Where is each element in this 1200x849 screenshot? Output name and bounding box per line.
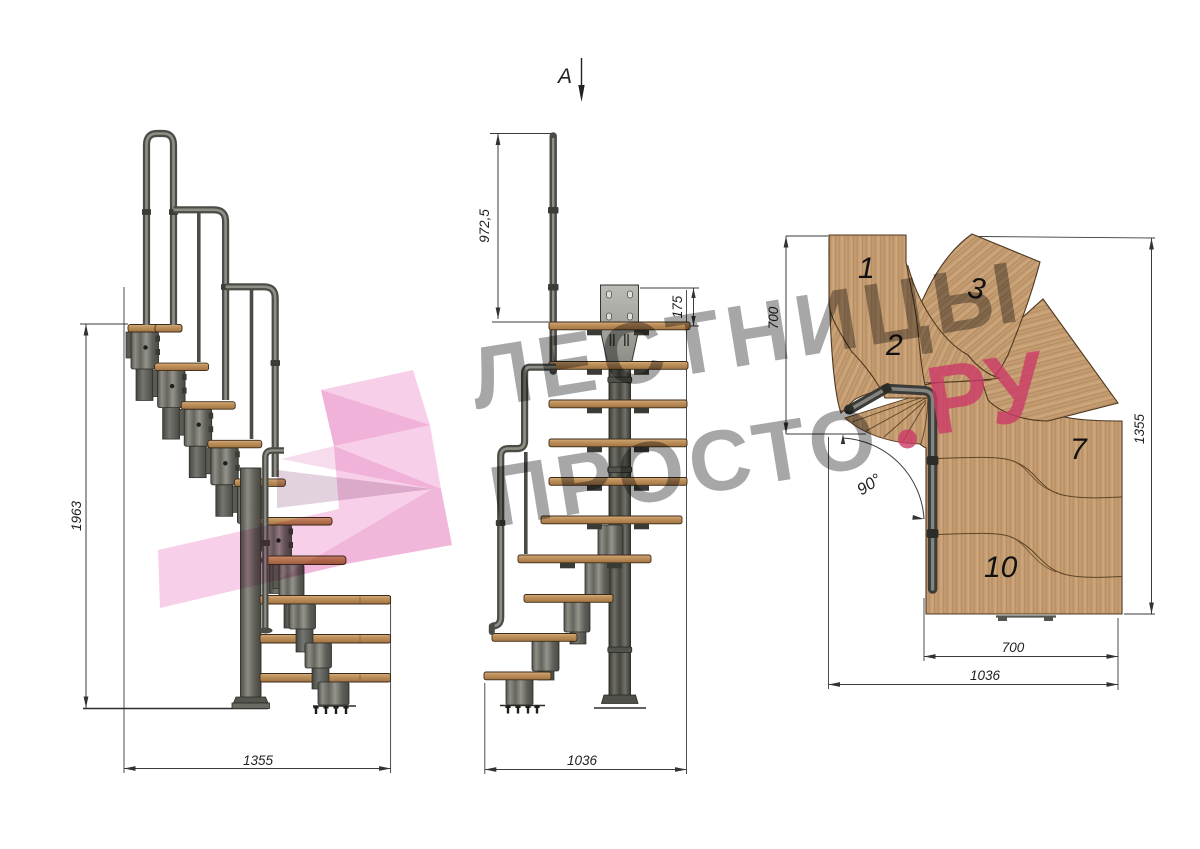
svg-text:700: 700 bbox=[1002, 640, 1025, 655]
svg-text:РУ: РУ bbox=[919, 329, 1054, 455]
svg-text:A: A bbox=[556, 65, 572, 88]
svg-text:1036: 1036 bbox=[970, 668, 1001, 683]
svg-text:972,5: 972,5 bbox=[477, 209, 492, 243]
svg-text:1036: 1036 bbox=[567, 753, 598, 768]
svg-text:10: 10 bbox=[984, 551, 1018, 584]
svg-text:7: 7 bbox=[1070, 433, 1088, 466]
svg-text:1963: 1963 bbox=[69, 500, 84, 531]
svg-text:1355: 1355 bbox=[1132, 413, 1147, 444]
svg-text:1355: 1355 bbox=[243, 753, 274, 768]
